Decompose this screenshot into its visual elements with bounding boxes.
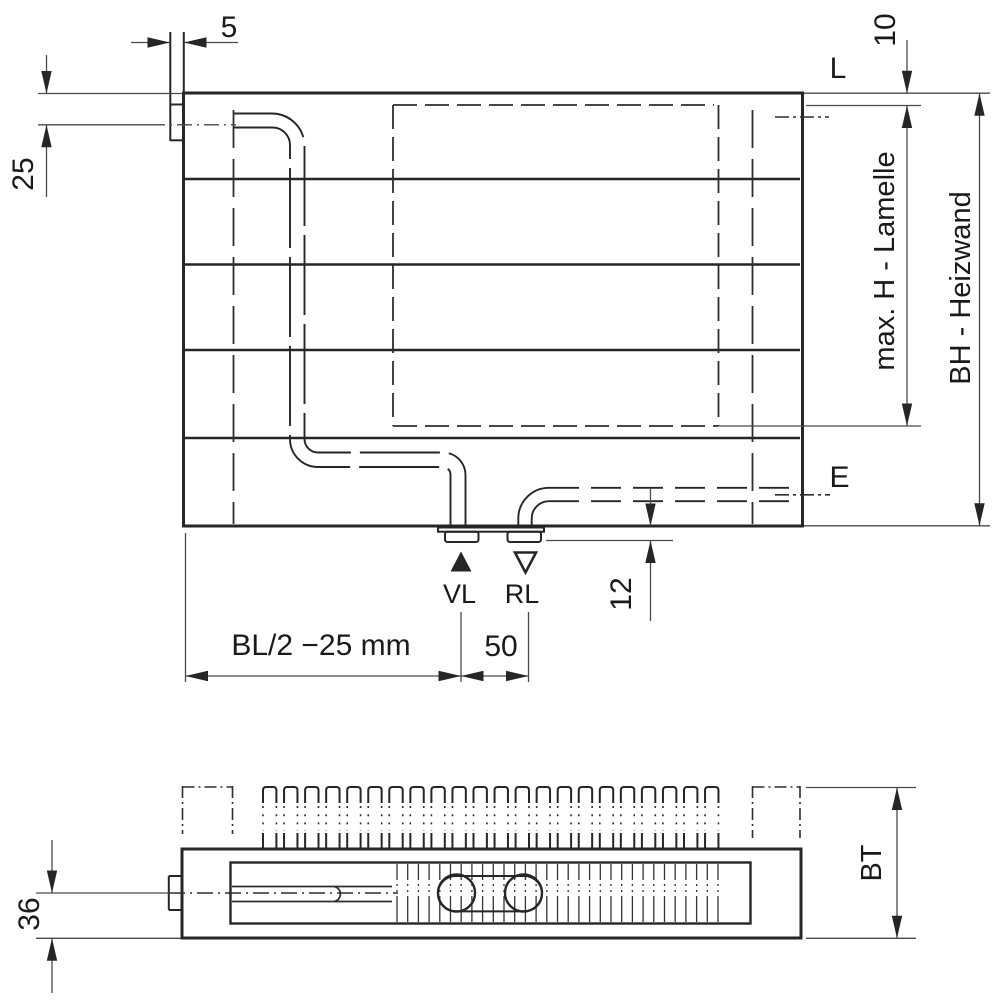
- fin-tooth: [263, 787, 276, 803]
- technical-drawing: 5 25 10 max. H - Lamelle: [0, 0, 1000, 1000]
- radiator-drawing-svg: 5 25 10 max. H - Lamelle: [0, 0, 1000, 1000]
- dim-edge-to-supply-label: BL/2 −25 mm: [231, 629, 410, 662]
- convector-fins: [263, 787, 718, 849]
- dim-top-offset: 25: [7, 55, 236, 197]
- fin-tooth: [516, 787, 529, 803]
- dim-top-offset-label: 25: [7, 157, 40, 190]
- supply-boss: [438, 875, 475, 912]
- fin-tooth: [663, 787, 676, 803]
- dim-lamelle-height-label: max. H - Lamelle: [869, 151, 901, 370]
- supply-pipe: [234, 114, 466, 528]
- dim-tab-width-label: 5: [221, 11, 238, 44]
- return-marker-icon: [515, 553, 536, 573]
- dim-build-depth: BT: [806, 788, 916, 939]
- fin-tooth: [495, 787, 508, 803]
- return-stub: [508, 532, 542, 542]
- fin-tooth: [579, 787, 592, 803]
- fin-tooth: [705, 787, 718, 803]
- drain-label: E: [829, 461, 849, 494]
- fin-tooth: [389, 787, 402, 803]
- fin-tooth: [431, 787, 444, 803]
- dim-supply-spacing-label: 50: [484, 630, 517, 663]
- dim-right-side: 10 max. H - Lamelle BH - Heizwand L E: [719, 13, 990, 525]
- fin-tooth: [537, 787, 550, 803]
- dim-center-to-face: 36: [13, 840, 181, 993]
- tube-slot: [232, 887, 392, 902]
- fin-tooth: [642, 787, 655, 803]
- front-view: [170, 32, 830, 573]
- return-pipe: [518, 488, 799, 527]
- fin-tooth: [368, 787, 381, 803]
- bracket-hidden-lines: [234, 110, 753, 524]
- panel-joint-lines: [185, 179, 800, 438]
- radiator-outline: [184, 93, 803, 526]
- dim-lamelle-gap-label: 10: [869, 13, 902, 46]
- front-view-dimensions: 5 25 10 max. H - Lamelle: [7, 11, 990, 682]
- fin-tooth: [474, 787, 487, 803]
- dim-tab-width: 5: [131, 11, 238, 48]
- dim-stub-protrusion: 12: [546, 488, 673, 621]
- fin-tooth: [600, 787, 613, 803]
- dim-bottom-connections: BL/2 −25 mm 50 VL RL: [186, 533, 540, 682]
- connection-stubs: [438, 528, 544, 543]
- top-view: 36 BT: [13, 786, 916, 993]
- dim-build-depth-label: BT: [856, 844, 888, 881]
- phantom-brackets: [183, 786, 801, 838]
- fin-tooth: [305, 787, 318, 803]
- supply-marker-icon: [451, 552, 472, 572]
- inner-channel-outline: [231, 863, 751, 924]
- vent-label: L: [830, 52, 847, 85]
- connection-bosses: [438, 875, 542, 912]
- fin-tooth: [410, 787, 423, 803]
- return-label: RL: [505, 579, 540, 609]
- return-boss: [505, 875, 542, 912]
- dim-center-to-face-label: 36: [13, 897, 46, 930]
- fin-tooth: [347, 787, 360, 803]
- fin-tooth: [326, 787, 339, 803]
- supply-stub: [445, 532, 479, 542]
- fin-tooth: [284, 787, 297, 803]
- dim-build-height-label: BH - Heizwand: [945, 191, 977, 384]
- fin-tooth: [452, 787, 465, 803]
- fin-tooth: [621, 787, 634, 803]
- fin-tooth: [558, 787, 571, 803]
- dim-stub-protrusion-label: 12: [605, 577, 638, 610]
- fin-hatch: [397, 864, 718, 922]
- supply-label: VL: [443, 579, 476, 609]
- fin-tooth: [684, 787, 697, 803]
